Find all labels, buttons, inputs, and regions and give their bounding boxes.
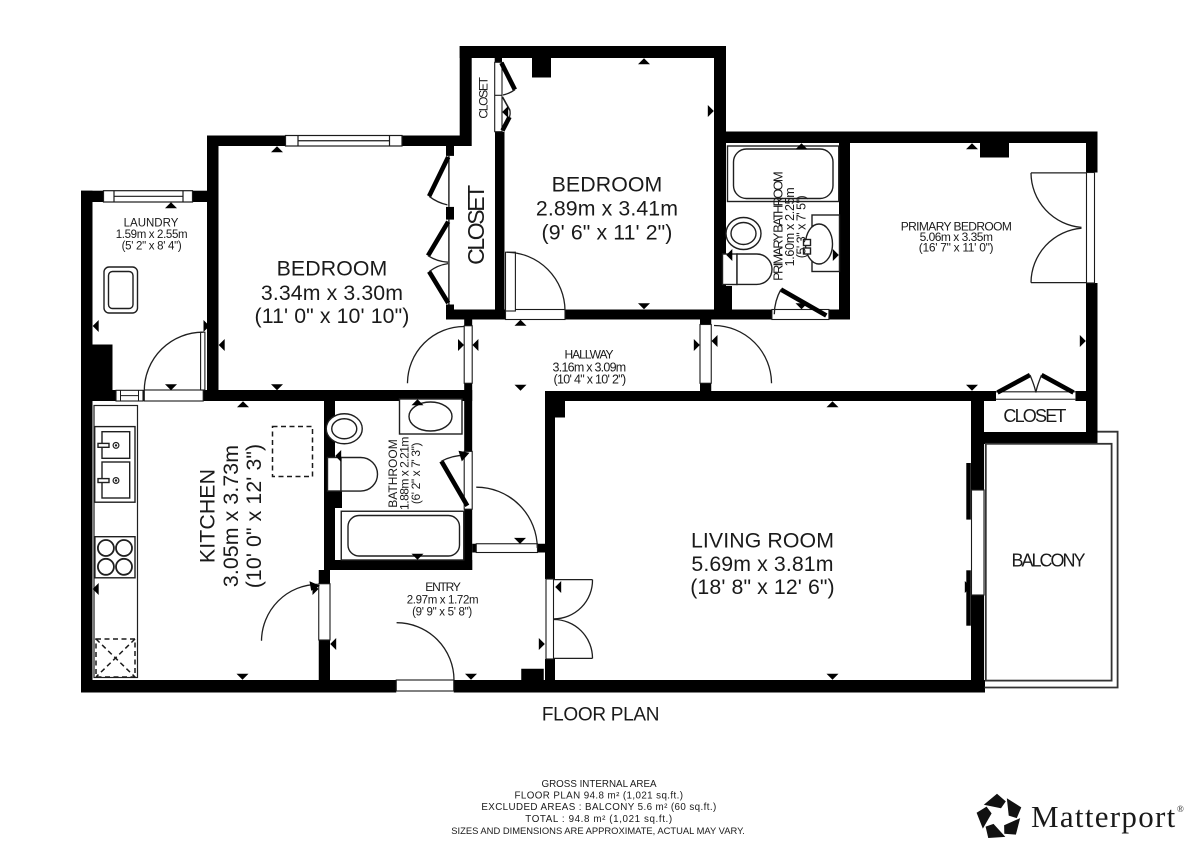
svg-text:TOTAL : 94.8 m² (1,021 sq.ft.: TOTAL : 94.8 m² (1,021 sq.ft.) bbox=[525, 814, 672, 825]
svg-text:Matterport: Matterport bbox=[1031, 799, 1177, 834]
svg-text:(18' 8" x 12' 6"): (18' 8" x 12' 6") bbox=[690, 575, 835, 599]
svg-text:(10' 0" x 12' 3"): (10' 0" x 12' 3") bbox=[242, 444, 266, 589]
svg-text:CLOSET: CLOSET bbox=[1003, 406, 1066, 426]
svg-text:CLOSET: CLOSET bbox=[463, 185, 489, 265]
svg-text:2.89m x 3.41m: 2.89m x 3.41m bbox=[536, 197, 678, 221]
svg-text:KITCHEN: KITCHEN bbox=[196, 469, 220, 563]
svg-text:LIVING ROOM: LIVING ROOM bbox=[691, 529, 834, 553]
svg-text:1.59m x 2.55m: 1.59m x 2.55m bbox=[116, 229, 188, 241]
svg-text:(16' 7" x 11' 0"): (16' 7" x 11' 0") bbox=[919, 241, 994, 255]
svg-text:CLOSET: CLOSET bbox=[477, 76, 491, 118]
svg-text:BEDROOM: BEDROOM bbox=[552, 173, 663, 197]
svg-text:®: ® bbox=[1177, 804, 1184, 814]
svg-text:BEDROOM: BEDROOM bbox=[277, 257, 388, 281]
svg-text:ENTRY: ENTRY bbox=[425, 580, 461, 594]
svg-text:GROSS INTERNAL AREA: GROSS INTERNAL AREA bbox=[541, 779, 657, 790]
svg-text:FLOOR PLAN: FLOOR PLAN bbox=[542, 705, 659, 726]
svg-text:(5' 3" x 7' 5"): (5' 3" x 7' 5") bbox=[795, 195, 809, 258]
svg-text:LAUNDRY: LAUNDRY bbox=[124, 218, 179, 230]
svg-text:5.69m x 3.81m: 5.69m x 3.81m bbox=[691, 552, 833, 576]
svg-text:EXCLUDED AREAS : BALCONY 5.6: EXCLUDED AREAS : BALCONY 5.6 m² (60 sq.f… bbox=[481, 802, 716, 813]
svg-text:BALCONY: BALCONY bbox=[1011, 551, 1085, 571]
svg-text:SIZES AND DIMENSIONS ARE APPRO: SIZES AND DIMENSIONS ARE APPROXIMATE, AC… bbox=[451, 825, 744, 836]
svg-text:FLOOR PLAN 94.8 m² (1,021 sq.f: FLOOR PLAN 94.8 m² (1,021 sq.ft.) bbox=[515, 791, 684, 802]
svg-text:HALLWAY: HALLWAY bbox=[564, 348, 613, 362]
svg-text:2.97m x 1.72m: 2.97m x 1.72m bbox=[407, 595, 479, 607]
svg-text:(9' 6" x 11' 2"): (9' 6" x 11' 2") bbox=[542, 221, 673, 245]
svg-text:(11' 0" x 10' 10"): (11' 0" x 10' 10") bbox=[255, 304, 410, 328]
svg-text:3.34m x 3.30m: 3.34m x 3.30m bbox=[261, 281, 403, 305]
svg-text:(6' 2" x 7' 3"): (6' 2" x 7' 3") bbox=[409, 443, 423, 505]
svg-text:(9' 9" x 5' 8"): (9' 9" x 5' 8") bbox=[412, 607, 472, 619]
svg-text:3.05m x 3.73m: 3.05m x 3.73m bbox=[219, 445, 243, 587]
svg-text:(10' 4" x 10' 2"): (10' 4" x 10' 2") bbox=[554, 373, 626, 387]
svg-text:(5' 2" x 8' 4"): (5' 2" x 8' 4") bbox=[122, 241, 182, 253]
